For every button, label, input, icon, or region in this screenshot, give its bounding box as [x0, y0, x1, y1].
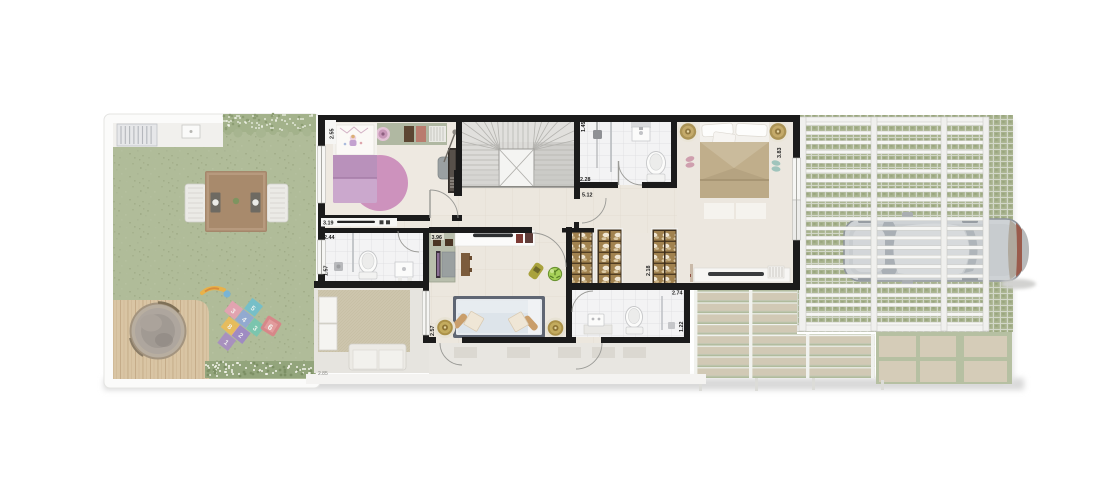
svg-text:2.55: 2.55 [330, 129, 336, 140]
svg-text:2.44: 2.44 [324, 235, 335, 241]
svg-text:2.85: 2.85 [318, 371, 328, 377]
svg-text:2.57: 2.57 [430, 326, 436, 337]
svg-text:2.28: 2.28 [580, 177, 591, 183]
svg-text:3.96: 3.96 [432, 235, 443, 241]
svg-text:1.22: 1.22 [679, 322, 685, 333]
svg-text:2.18: 2.18 [646, 266, 652, 277]
svg-text:1.45: 1.45 [581, 122, 587, 133]
svg-text:2.74: 2.74 [672, 291, 683, 297]
svg-text:1.57: 1.57 [324, 266, 330, 277]
svg-text:3.83: 3.83 [777, 148, 783, 159]
svg-text:3.19: 3.19 [323, 221, 334, 227]
svg-text:5.12: 5.12 [582, 193, 593, 199]
